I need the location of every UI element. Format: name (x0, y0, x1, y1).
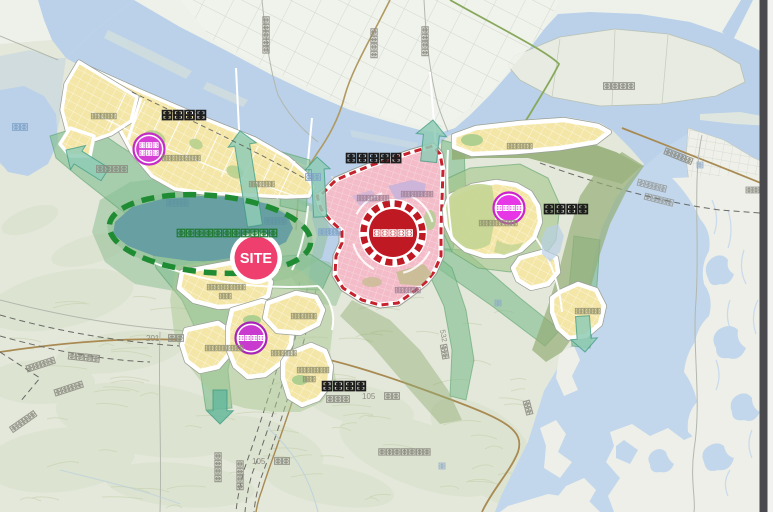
svg-text:105: 105 (252, 457, 266, 466)
svg-text:SITE: SITE (240, 251, 273, 267)
svg-text:201: 201 (146, 334, 160, 343)
svg-text:105: 105 (362, 392, 376, 401)
